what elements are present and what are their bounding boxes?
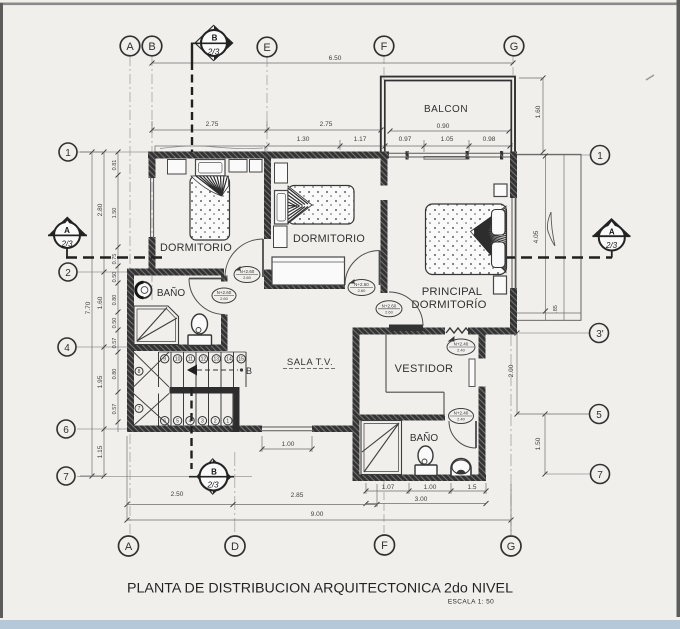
svg-text:6.50: 6.50 [329,55,342,62]
svg-text:0.50: 0.50 [112,272,118,283]
svg-text:4.05: 4.05 [533,230,540,243]
svg-text:DORMITORÍO: DORMITORÍO [411,298,486,311]
svg-text:1.00: 1.00 [282,441,295,448]
svg-text:6: 6 [63,425,69,436]
svg-text:0.80: 0.80 [112,295,118,306]
svg-text:10: 10 [175,357,181,363]
svg-text:1.50: 1.50 [112,208,118,219]
svg-text:3: 3 [201,419,204,425]
svg-text:4: 4 [189,419,192,425]
svg-text:1.50: 1.50 [535,437,542,450]
svg-text:2/3: 2/3 [605,241,618,250]
svg-text:0.81: 0.81 [112,160,118,171]
svg-text:1.07: 1.07 [382,484,395,491]
svg-text:1.95: 1.95 [97,375,104,388]
svg-text:2/3: 2/3 [60,240,73,249]
svg-text:2.75: 2.75 [320,121,333,128]
svg-text:PLANTA DE DISTRIBUCION ARQUITE: PLANTA DE DISTRIBUCION ARQUITECTONICA 2d… [127,581,513,597]
svg-text:7: 7 [597,470,603,481]
svg-text:2.80: 2.80 [97,203,104,216]
svg-text:7: 7 [63,472,69,483]
svg-text:7.70: 7.70 [85,301,92,314]
svg-text:DORMITORIO: DORMITORIO [160,242,232,254]
svg-text:PRINCIPAL: PRINCIPAL [422,286,483,298]
svg-text:2.60: 2.60 [385,310,394,315]
svg-text:5: 5 [176,419,179,425]
svg-text:A: A [125,541,133,553]
svg-text:2/3: 2/3 [206,481,219,490]
svg-text:3.00: 3.00 [415,496,428,503]
svg-text:2.60: 2.60 [220,296,229,301]
svg-text:9.00: 9.00 [311,511,324,518]
svg-text:2: 2 [65,268,71,279]
svg-text:2.60: 2.60 [358,288,367,293]
svg-text:6: 6 [163,419,166,425]
svg-text:N+2.60: N+2.60 [382,304,397,309]
svg-text:B: B [246,366,252,376]
svg-text:0.97: 0.97 [399,136,412,143]
svg-text:BALCON: BALCON [424,104,468,115]
svg-text:14: 14 [226,357,232,363]
svg-text:4: 4 [64,343,70,354]
svg-text:2.40: 2.40 [457,417,466,422]
svg-text:0.57: 0.57 [112,338,118,349]
svg-text:15: 15 [238,357,244,363]
svg-text:B: B [212,34,218,43]
svg-text:E: E [263,42,270,54]
svg-text:ESCALA 1: 50: ESCALA 1: 50 [448,599,494,606]
svg-text:0.57: 0.57 [112,404,118,415]
svg-text:1.30: 1.30 [297,136,310,143]
svg-text:BAÑO: BAÑO [410,431,439,444]
svg-text:B: B [148,41,155,53]
svg-text:2.75: 2.75 [206,121,219,128]
svg-text:7: 7 [138,406,141,412]
svg-text:0.80: 0.80 [112,369,118,380]
svg-text:G: G [507,541,516,553]
svg-text:F: F [381,41,388,53]
svg-text:3': 3' [596,329,604,340]
svg-text:2.00: 2.00 [508,364,515,377]
svg-text:1: 1 [65,148,71,159]
svg-text:1.60: 1.60 [97,296,104,309]
svg-text:N+2.60: N+2.60 [240,269,255,274]
svg-text:0.50: 0.50 [112,318,118,329]
svg-text:D: D [231,541,239,553]
svg-text:0.98: 0.98 [483,136,496,143]
svg-text:VESTIDOR: VESTIDOR [395,363,454,375]
svg-text:F: F [381,540,388,552]
svg-text:12: 12 [201,357,207,363]
svg-text:1.5: 1.5 [467,484,476,491]
svg-text:0.90: 0.90 [437,123,450,130]
svg-text:1.60: 1.60 [535,105,542,118]
svg-text:9: 9 [163,357,166,363]
svg-text:1: 1 [597,151,603,162]
svg-text:2.40: 2.40 [457,348,466,353]
svg-text:11: 11 [188,357,193,363]
svg-text:1.00: 1.00 [424,484,437,491]
svg-text:2.50: 2.50 [171,491,184,498]
svg-text:1.05: 1.05 [441,136,454,143]
svg-text:1: 1 [226,419,229,425]
svg-text:N+2.40: N+2.40 [454,411,469,416]
svg-text:2/3: 2/3 [207,47,220,57]
svg-text:2.60: 2.60 [243,275,252,280]
svg-text:G: G [510,41,519,53]
svg-text:2.85: 2.85 [291,492,304,499]
svg-text:N+2.60: N+2.60 [217,290,232,295]
svg-text:1.15: 1.15 [97,445,104,458]
svg-text:.85: .85 [553,305,559,313]
svg-text:0.75: 0.75 [112,254,118,265]
svg-text:5: 5 [596,410,602,421]
svg-text:8: 8 [138,369,141,375]
svg-text:BAÑO: BAÑO [157,286,186,299]
svg-text:N+2.40: N+2.40 [454,342,469,347]
svg-text:A: A [609,228,615,237]
svg-text:N+2.60: N+2.60 [354,282,369,287]
svg-text:2: 2 [214,419,217,425]
svg-text:A: A [64,226,70,235]
svg-text:DORMITORIO: DORMITORIO [293,233,365,245]
svg-text:B: B [211,468,217,477]
svg-text:13: 13 [214,357,220,363]
svg-text:SALA T.V.: SALA T.V. [287,357,333,368]
svg-text:A: A [126,41,134,53]
svg-text:1.17: 1.17 [354,136,367,143]
